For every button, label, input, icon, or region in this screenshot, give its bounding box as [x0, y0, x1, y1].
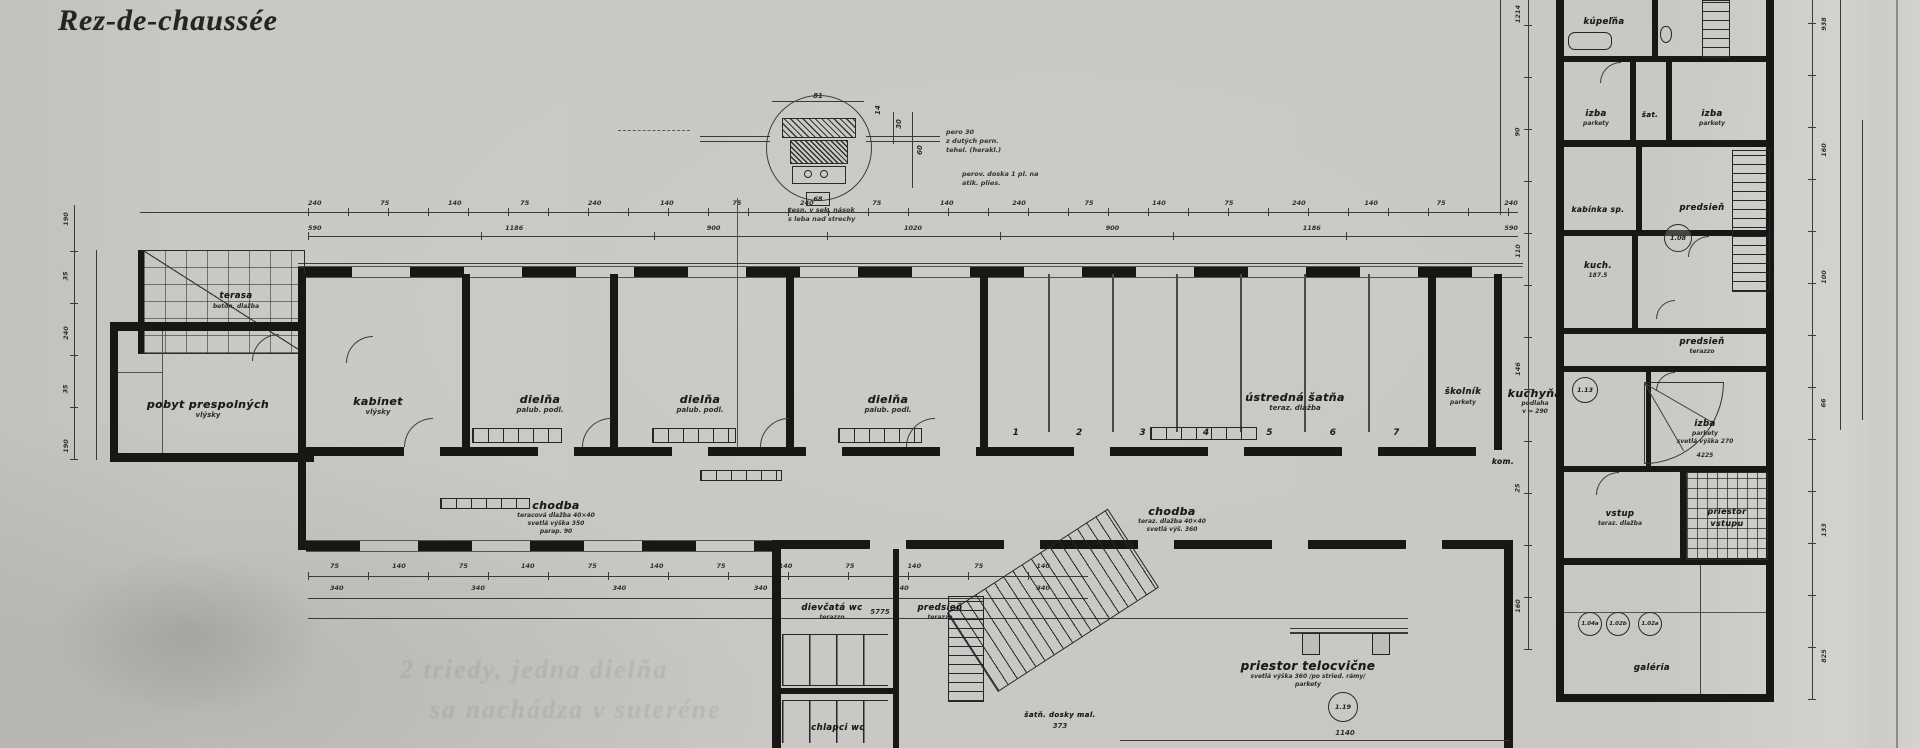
door-arc-vstup: [1596, 472, 1619, 495]
dim-value: 190: [62, 439, 70, 453]
workbench-dielna-1: [472, 428, 562, 443]
detail-dowel-2: [820, 170, 828, 178]
room-label-gym: priestor telocvične: [1241, 660, 1376, 672]
dim-value: 240: [1292, 199, 1306, 207]
room-label-terasa: terasa: [220, 292, 253, 301]
room-label-izba-1: izba: [1585, 110, 1606, 119]
detail-note-1b: z dutých pern.: [946, 137, 1001, 146]
dim-value: 75: [974, 562, 983, 570]
pobyt-west-wall: [110, 322, 118, 462]
dim-ticks-right-1: [1808, 0, 1816, 700]
room-label-chlapci: chlapci wc: [811, 724, 865, 733]
bay-number: 7: [1393, 428, 1399, 438]
dim-value: 340: [613, 584, 627, 592]
pobyt-shelf: [118, 372, 162, 373]
room-sub-chodba-right-1: teraz. dlažba 40×40: [1138, 519, 1206, 525]
room-label-kom: kom.: [1492, 458, 1514, 466]
dim-value: 66: [1820, 399, 1828, 408]
entrance-porch: [1686, 472, 1768, 560]
room-number-circle-predsien-1: 1.08: [1664, 224, 1692, 252]
room-sub-kabinet: vlýsky: [366, 409, 391, 416]
room-label-chodba-right: chodba: [1148, 506, 1195, 517]
dim-value: 35: [62, 385, 70, 394]
dim-value: 140: [1152, 199, 1166, 207]
room-sub-satna: teraz. dlažba: [1269, 405, 1320, 412]
dim-value: 100: [1820, 270, 1828, 284]
detail-roofline-l1: [700, 136, 770, 137]
room-label-skolnik: školník: [1445, 388, 1482, 397]
dim-value: 35: [62, 271, 70, 280]
dim-izba-3: 4225: [1697, 452, 1714, 459]
dim-value: 140: [448, 199, 462, 207]
dim-value: 140: [660, 199, 674, 207]
wing-east-wall: [1766, 0, 1774, 702]
detail-note-3: tesn. v sek. nások s leba nad strechy: [788, 206, 855, 224]
terrace: [138, 250, 305, 354]
dim-value: 240: [62, 326, 70, 340]
dim-row-bottom-small: 751407514075140751407514075140: [330, 562, 1050, 570]
staircase-wing-top: [1702, 0, 1730, 58]
dim-value: 75: [1224, 199, 1233, 207]
detail-dim-right-line2: [893, 112, 894, 144]
wing-h-wall-2: [1564, 140, 1766, 147]
page-title: Rez-de-chaussée: [58, 4, 278, 38]
dim-col-left: 1903524035190: [60, 215, 72, 450]
wc-stalls-girls: [782, 634, 888, 686]
room-label-kabinet: kabinet: [353, 396, 403, 407]
room-number-circle-c: 1.02a: [1638, 612, 1662, 636]
room-sub-gym-2: parkety: [1295, 682, 1321, 688]
dim-value: 146: [1514, 362, 1522, 376]
bay-partition-1: [1048, 274, 1050, 432]
room-label-sat: šat.: [1642, 112, 1659, 119]
room-label-porch-1: priestor: [1707, 508, 1746, 516]
dim-value: 90: [1514, 128, 1522, 137]
bay-partition-6: [1368, 274, 1370, 432]
dim-value: 190: [62, 212, 70, 226]
detail-dowel-1: [804, 170, 812, 178]
dim-value: 75: [872, 199, 881, 207]
room-sub-dievcata: terazzo: [819, 615, 844, 621]
room-label-kuch: kuch.: [1584, 262, 1612, 271]
dim-row-top-small: 2407514075240140752407514024075140752401…: [308, 199, 1518, 207]
dim-value: 140: [1364, 199, 1378, 207]
room-sub-izba-3b: svetlá výška 270: [1677, 439, 1734, 445]
dim-value: 340: [754, 584, 768, 592]
detail-note-2: perov. doska 1 pl. na atik. plies.: [962, 170, 1039, 188]
door-arc-dielna-1: [404, 418, 433, 447]
wardrobe-rack: [1150, 427, 1257, 440]
toilet: [1660, 26, 1672, 43]
gym-dim-width: 1140: [1335, 729, 1354, 737]
room-sub-chodba-left-1: teracová dlažba 40×40: [517, 513, 595, 519]
bay-partition-4: [1240, 274, 1242, 432]
detail-roofline-r2: [866, 141, 940, 142]
door-arc-predsien-2: [1656, 300, 1675, 319]
bay-number: 5: [1266, 428, 1272, 438]
pobyt-partition: [162, 331, 163, 453]
detail-dim-right-line1: [912, 112, 913, 188]
wing-h-wall-4: [1564, 328, 1766, 334]
door-arc-dielna-2: [582, 418, 611, 447]
label-dosky: šatň. dosky mal.: [1024, 712, 1095, 719]
dim-value: 340: [330, 584, 344, 592]
gym-north-wall: [772, 540, 1513, 549]
wc-partition: [893, 549, 899, 748]
dim-value: 110: [1514, 244, 1522, 258]
dim-row-top-large: 590118690010209001186590: [308, 224, 1518, 232]
dim-value: 240: [588, 199, 602, 207]
room-label-porch-2: vstupu: [1710, 520, 1743, 528]
room-number-circle-kuchyna: 1.13: [1572, 377, 1598, 403]
room-label-predsien-1: predsieň: [1679, 204, 1724, 213]
dim-value: 1186: [1303, 224, 1321, 232]
detail-note-3b: s leba nad strechy: [788, 215, 855, 224]
room-label-chodba-left: chodba: [532, 500, 579, 511]
dim-bottom-total: 5775: [870, 608, 889, 616]
staircase-wing-main: [1732, 150, 1770, 292]
detail-dowel-block: [792, 166, 846, 184]
room-number-circle-a: 1.04a: [1578, 612, 1602, 636]
door-arc-kupelna: [1600, 62, 1621, 83]
dim-ticks-top-2: [308, 232, 1518, 240]
room-sub-terasa: betón. dlažba: [213, 304, 259, 310]
partition-a: [298, 274, 306, 550]
page-edge-line: [1896, 0, 1898, 748]
dim-dosky: 373: [1053, 722, 1068, 730]
detail-leader-dashes: [618, 130, 690, 131]
detail-dim-top: 81: [813, 92, 823, 100]
dim-line-right-3: [1862, 120, 1863, 420]
corridor-bench-2: [700, 470, 782, 481]
dim-value: 900: [1106, 224, 1120, 232]
partition-f: [1428, 274, 1436, 450]
room-sub-chodba-left-2: svetlá výška 350: [528, 521, 585, 527]
wing-v-wall-5: [1632, 236, 1638, 328]
pobyt-south-wall: [110, 453, 314, 462]
dim-value: 1214: [1514, 5, 1522, 23]
wing-h-wall-1: [1564, 56, 1766, 62]
corridor-north-wall: [306, 447, 1504, 456]
room-number-circle-b: 1.02b: [1606, 612, 1630, 636]
partition-e: [980, 274, 988, 450]
gym-dim-line: [1120, 740, 1510, 741]
dim-value: 140: [940, 199, 954, 207]
detail-dim-30: 30: [895, 119, 903, 129]
room-label-izba-2: izba: [1701, 110, 1722, 119]
detail-roofline-l2: [700, 141, 770, 142]
wing-north-wall-windows: [298, 266, 1523, 278]
room-label-dievcata: dievčatá wc: [801, 604, 862, 613]
floorplan-canvas: 2 triedy, jedna dielňa sa nachádza v sut…: [0, 0, 1920, 748]
dim-value: 75: [1084, 199, 1093, 207]
dim-row-bottom-mid: 340340340340340340: [330, 584, 1050, 592]
dim-col-right: 93816010066133825: [1818, 20, 1830, 660]
annex-v-line: [1700, 565, 1701, 694]
detail-note-2b: atik. plies.: [962, 179, 1039, 188]
dim-value: 25: [1514, 483, 1522, 492]
room-number-circle-gym: 1.19: [1328, 692, 1358, 722]
room-sub-skolnik: parkety: [1450, 400, 1476, 406]
room-sub-gym-1: svetlá výška 360 /po stried. rámy/: [1251, 674, 1366, 680]
door-arc-kabinet: [346, 336, 373, 363]
wing-dim-ticks: [1524, 0, 1532, 650]
dim-value: 900: [707, 224, 721, 232]
wing-v-wall-4: [1636, 146, 1642, 230]
page-edge: [1878, 0, 1920, 748]
wing-v-wall-1: [1652, 0, 1658, 56]
wing-dim-line-1: [1500, 0, 1501, 215]
bay-number: 6: [1330, 428, 1336, 438]
partition-c: [610, 274, 618, 450]
bay-partition-2: [1112, 274, 1114, 432]
dim-line-terasa: [140, 212, 308, 213]
dim-value: 75: [459, 562, 468, 570]
dim-value: 140: [521, 562, 535, 570]
room-label-pobyt: pobyt prespolných: [147, 399, 269, 410]
detail-leader-line: [737, 198, 738, 450]
wing-south-wall: [1556, 694, 1774, 702]
room-sub-kuch: 187.5: [1589, 273, 1608, 279]
detail-note-1c: tehel. (herakl.): [946, 146, 1001, 155]
bay-partition-3: [1176, 274, 1178, 432]
bathtub: [1568, 32, 1612, 50]
door-arc-satna: [906, 418, 935, 447]
room-label-dielna-1: dielňa: [520, 394, 561, 405]
gym-column-2: [1372, 633, 1390, 655]
dim-value: 590: [308, 224, 322, 232]
dim-value: 75: [1437, 199, 1446, 207]
room-sub-chodba-left-3: parap. 90: [540, 529, 572, 535]
wing-top-edge: [298, 263, 1523, 264]
bay-number: 1: [1013, 428, 1019, 438]
room-sub-predsien-2: terazzo: [1689, 349, 1714, 355]
gym-column-1: [1302, 633, 1320, 655]
wc-horizontal-wall: [772, 688, 899, 694]
room-sub-izba-3a: parkety: [1692, 431, 1718, 437]
room-label-dielna-2: dielňa: [680, 394, 721, 405]
dim-value: 75: [845, 562, 854, 570]
bleedthrough-text-2: sa nachádza v suteréne: [430, 695, 722, 725]
door-arc-dielna-3: [760, 418, 789, 447]
room-label-dielna-3: dielňa: [868, 394, 909, 405]
bay-number: 3: [1139, 428, 1145, 438]
detail-note-1a: pero 30: [946, 128, 1001, 137]
door-arc-izba-3: [1656, 372, 1675, 391]
workbench-dielna-2: [652, 428, 736, 443]
detail-note-2a: perov. doska 1 pl. na: [962, 170, 1039, 179]
detail-roofline-r1: [866, 136, 940, 137]
dim-value: 240: [1012, 199, 1026, 207]
dim-line-bottom-total: [308, 618, 1408, 619]
scan-smudge: [0, 520, 380, 748]
partition-g: [1494, 274, 1502, 450]
gym-west-wall: [772, 540, 781, 748]
wing-west-wall: [1556, 0, 1564, 702]
dim-ticks-top-1: [308, 208, 1518, 216]
dim-value: 160: [1514, 599, 1522, 613]
corridor-bench-1: [440, 498, 530, 509]
dim-value: 140: [908, 562, 922, 570]
room-label-kupelna: kúpeľňa: [1583, 18, 1624, 27]
wing-v-wall-2: [1630, 62, 1636, 140]
room-label-kabinka: kabínka sp.: [1571, 206, 1624, 214]
detail-dim-60: 60: [916, 145, 924, 155]
detail-hatch-block: [790, 140, 848, 164]
dim-value: 825: [1820, 649, 1828, 663]
detail-note-3a: tesn. v sek. nások: [788, 206, 855, 215]
room-label-vstup: vstup: [1606, 510, 1635, 519]
dim-value: 140: [650, 562, 664, 570]
detail-box-68: 68: [806, 192, 830, 206]
dim-value: 340: [471, 584, 485, 592]
dim-value: 75: [588, 562, 597, 570]
dim-value: 938: [1820, 17, 1828, 31]
dim-value: 140: [392, 562, 406, 570]
bay-number: 2: [1076, 428, 1082, 438]
room-sub-izba-1: parkety: [1583, 121, 1609, 127]
pobyt-north-wall: [110, 322, 306, 331]
room-sub-pobyt: vlýsky: [196, 412, 221, 419]
gym-beam-line-1: [1290, 628, 1408, 629]
dim-value: 75: [380, 199, 389, 207]
dim-value: 160: [1820, 144, 1828, 158]
wing-h-wall-5: [1564, 366, 1766, 372]
dim-line-right-2: [1840, 0, 1841, 430]
dim-value: 1020: [904, 224, 922, 232]
wing-v-wall-3: [1666, 62, 1672, 140]
room-label-predsien-2: predsieň: [1679, 338, 1724, 347]
dim-value: 75: [330, 562, 339, 570]
dim-value: 75: [717, 562, 726, 570]
room-label-izba-3: izba: [1694, 420, 1715, 429]
dim-line-left-2: [96, 250, 97, 460]
dim-ticks-bottom-1: [308, 572, 1088, 580]
room-sub-dielna-3: palub. podl.: [864, 407, 911, 414]
room-sub-izba-2: parkety: [1699, 121, 1725, 127]
dim-value: 1186: [505, 224, 523, 232]
room-sub-dielna-2: palub. podl.: [676, 407, 723, 414]
corridor-south-wall-windows: [306, 540, 772, 552]
room-sub-vstup: teraz. dlažba: [1598, 521, 1642, 527]
dim-value: 133: [1820, 523, 1828, 537]
dim-value: 75: [520, 199, 529, 207]
room-sub-chodba-right-2: svetlá výš. 360: [1147, 527, 1198, 533]
dim-value: 240: [308, 199, 322, 207]
detail-hatch-band: [782, 118, 856, 138]
wing-dim-col: 12149011014625160: [1512, 10, 1524, 610]
detail-note-1: pero 30 z dutých pern. tehel. (herakl.): [946, 128, 1001, 154]
partition-b: [462, 274, 470, 450]
detail-dim-14: 14: [874, 105, 882, 115]
wc-stalls-boys: [782, 700, 888, 743]
room-label-satna: ústredná šatňa: [1245, 392, 1345, 403]
detail-dim-top-line: [772, 101, 864, 102]
room-label-galeria: galéria: [1634, 664, 1670, 673]
bleedthrough-text-1: 2 triedy, jedna dielňa: [400, 655, 668, 685]
room-sub-dielna-1: palub. podl.: [516, 407, 563, 414]
